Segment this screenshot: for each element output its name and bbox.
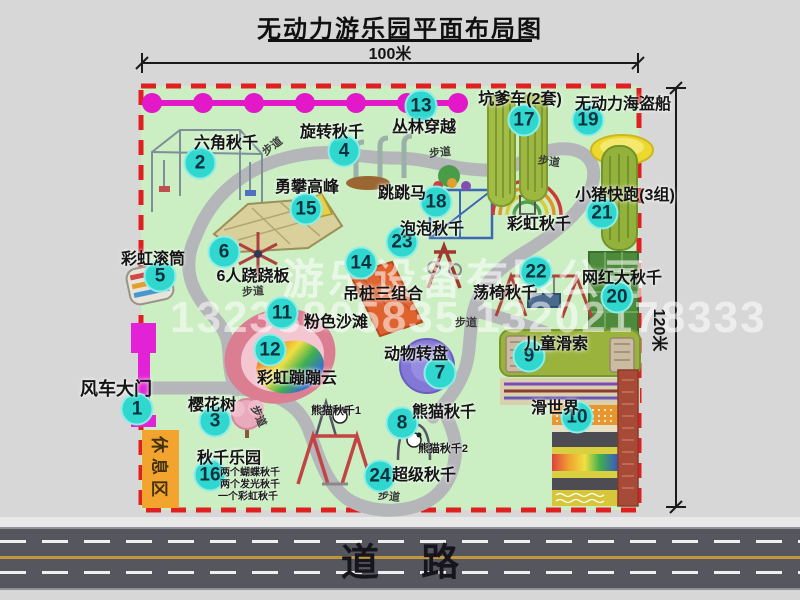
poi-label: 勇攀高峰	[275, 173, 339, 197]
poi-label: 彩虹蹦蹦云	[257, 364, 337, 388]
poi-label: 跳跳马	[378, 179, 426, 203]
poi-badge-14: 14	[345, 247, 378, 280]
poi-label: 儿童滑索	[524, 330, 588, 354]
poi-label: 风车大门	[80, 375, 152, 401]
poi-layer: 1风车大门2六角秋千3樱花树4旋转秋千5彩虹滚筒66人跷跷板7动物转盘8熊猫秋千…	[0, 0, 800, 600]
park-plan-screenshot: 游乐设备有限公司 13233805835 13202178333 休息区 1风车…	[0, 0, 800, 600]
poi-label: 滑世界	[531, 394, 579, 418]
poi-label: 吊桩三组合	[343, 280, 423, 304]
poi-label: 旋转秋千	[300, 118, 364, 142]
poi-label: 动物转盘	[384, 340, 448, 364]
dimension-width-label: 100米	[369, 40, 412, 64]
poi-badge-12: 12	[254, 334, 287, 367]
poi-label: 泡泡秋千	[400, 215, 464, 239]
poi-label: 小猪快跑(3组)	[575, 181, 675, 205]
poi-label: 丛林穿越	[392, 113, 456, 137]
poi-label: 无动力海盗船	[575, 90, 671, 114]
poi-label: 粉色沙滩	[304, 308, 368, 332]
poi-label: 彩虹秋千	[507, 210, 571, 234]
poi-label: 六角秋千	[194, 129, 258, 153]
sub-label: 熊猫秋千2	[418, 440, 468, 456]
poi-label: 熊猫秋千	[412, 398, 476, 422]
path-label: 步道	[428, 143, 452, 161]
poi-label: 荡椅秋千	[473, 279, 537, 303]
path-label: 步道	[537, 152, 561, 171]
poi-label: 超级秋千	[392, 461, 456, 485]
poi-label: 坑爹车(2套)	[478, 85, 562, 109]
sub-label: 熊猫秋千1	[311, 402, 361, 418]
poi-label: 彩虹滚筒	[121, 245, 185, 269]
poi-label: 网红大秋千	[582, 264, 662, 288]
path-label: 步道	[247, 403, 271, 430]
dimension-height-label: 120米	[649, 309, 673, 352]
poi-badge-11: 11	[266, 297, 299, 330]
poi-badge-15: 15	[290, 193, 323, 226]
sub-label: 一个彩虹秋千	[218, 488, 278, 503]
poi-label: 樱花树	[188, 391, 236, 415]
path-label: 步道	[455, 314, 477, 330]
path-label: 步道	[258, 133, 285, 159]
poi-label: 6人跷跷板	[217, 262, 290, 286]
